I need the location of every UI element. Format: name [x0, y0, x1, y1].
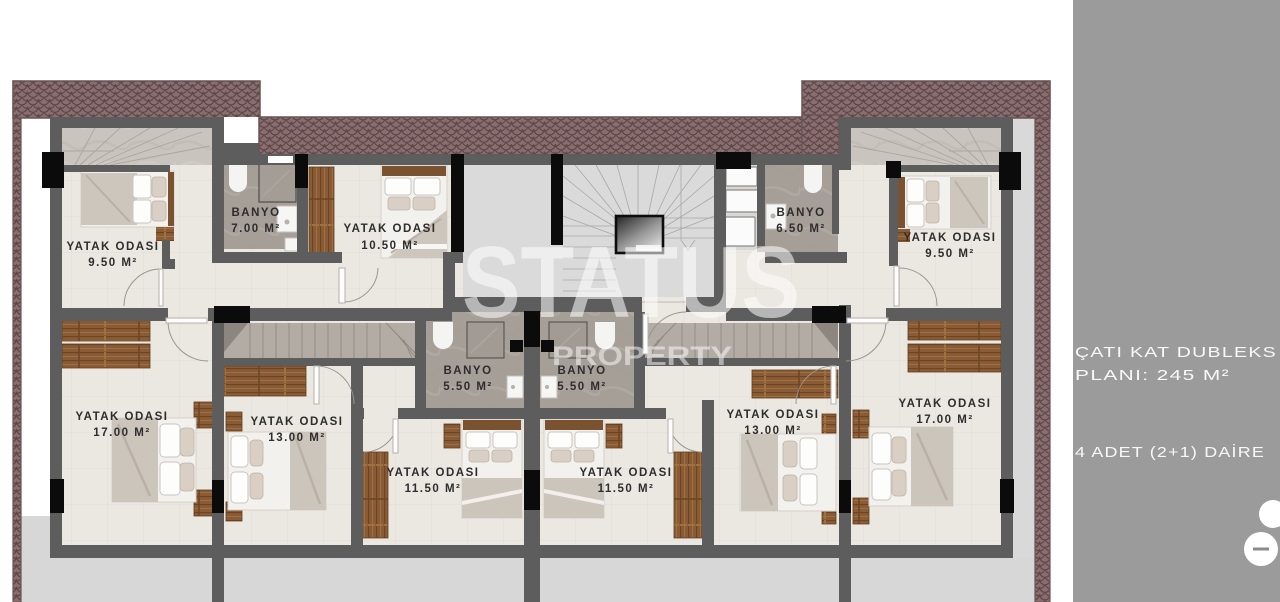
- svg-text:11.50 M²: 11.50 M²: [598, 483, 655, 495]
- svg-text:BANYO: BANYO: [231, 207, 280, 219]
- svg-text:YATAK ODASI: YATAK ODASI: [387, 467, 480, 479]
- svg-text:YATAK ODASI: YATAK ODASI: [251, 416, 344, 428]
- svg-text:BANYO: BANYO: [443, 365, 492, 377]
- svg-text:4 ADET (2+1) DAİRE: 4 ADET (2+1) DAİRE: [1075, 443, 1265, 461]
- svg-text:YATAK ODASI: YATAK ODASI: [344, 223, 437, 235]
- svg-text:YATAK ODASI: YATAK ODASI: [67, 241, 160, 253]
- svg-text:PROPERTY: PROPERTY: [552, 341, 733, 371]
- svg-text:11.50 M²: 11.50 M²: [405, 483, 462, 495]
- svg-text:17.00 M²: 17.00 M²: [93, 427, 150, 439]
- svg-text:YATAK ODASI: YATAK ODASI: [727, 409, 820, 421]
- svg-text:7.00 M²: 7.00 M²: [231, 223, 281, 235]
- svg-text:YATAK ODASI: YATAK ODASI: [580, 467, 673, 479]
- svg-text:9.50 M²: 9.50 M²: [925, 248, 975, 260]
- svg-text:STATUS: STATUS: [462, 226, 800, 339]
- svg-text:YATAK ODASI: YATAK ODASI: [899, 398, 992, 410]
- svg-text:17.00 M²: 17.00 M²: [916, 414, 973, 426]
- svg-text:YATAK ODASI: YATAK ODASI: [904, 232, 997, 244]
- svg-text:9.50 M²: 9.50 M²: [88, 257, 138, 269]
- svg-text:ÇATI KAT DUBLEKS: ÇATI KAT DUBLEKS: [1075, 344, 1277, 361]
- svg-text:10.50 M²: 10.50 M²: [361, 240, 418, 252]
- svg-text:13.00 M²: 13.00 M²: [744, 425, 801, 437]
- svg-text:PLANI: 245 M²: PLANI: 245 M²: [1075, 367, 1230, 384]
- svg-text:5.50 M²: 5.50 M²: [443, 381, 493, 393]
- svg-text:YATAK ODASI: YATAK ODASI: [76, 411, 169, 423]
- svg-text:13.00 M²: 13.00 M²: [268, 432, 325, 444]
- svg-text:5.50 M²: 5.50 M²: [557, 381, 607, 393]
- svg-text:BANYO: BANYO: [776, 207, 825, 219]
